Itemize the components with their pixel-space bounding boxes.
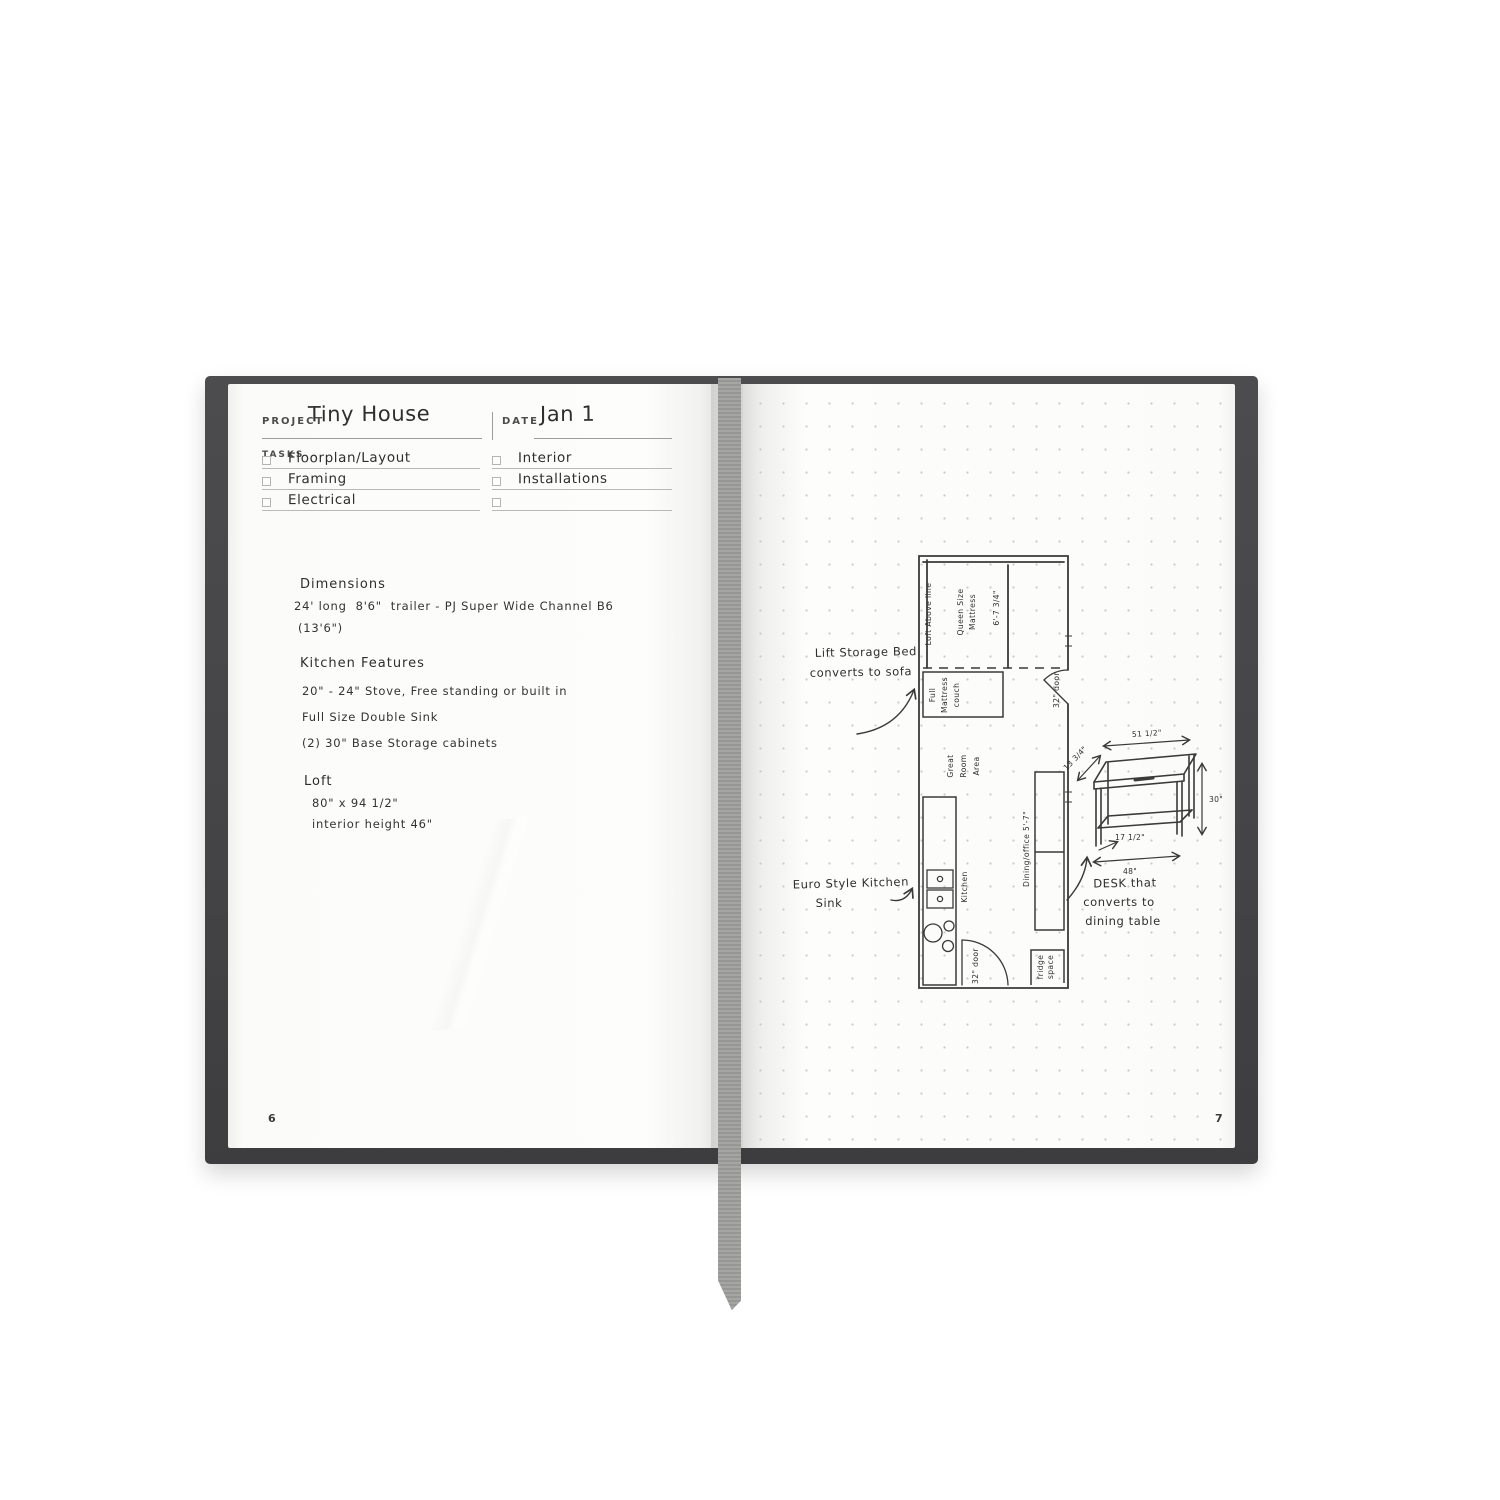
header-divider xyxy=(492,412,493,440)
loft-line1: 80" x 94 1/2" xyxy=(312,796,399,810)
plan-label-mattress2: Mattress xyxy=(940,677,949,713)
project-underline xyxy=(262,414,482,439)
kitchen-line2: Full Size Double Sink xyxy=(302,710,438,724)
task-row: Electrical xyxy=(262,484,480,511)
left-page: PROJECT Tiny House DATE Jan 1 TASKS Floo… xyxy=(228,384,726,1148)
desk-dim-height: 30" xyxy=(1209,795,1223,804)
desk-note-arrow xyxy=(1067,858,1087,900)
plan-label-loft: Loft Above line xyxy=(924,583,933,646)
desk-dimension-labels: 51 1/2" 13 3/4" 30" 17 1/2" 48" xyxy=(1062,728,1223,876)
plan-kitchen-counter xyxy=(923,797,956,985)
desk-note-line3: dining table xyxy=(1085,914,1161,928)
plan-bottom-door xyxy=(962,940,1008,985)
right-page-number: 7 xyxy=(1215,1112,1223,1125)
dimensions-line1: 24' long 8'6" trailer - PJ Super Wide Ch… xyxy=(294,599,614,613)
plan-label-great: Great xyxy=(946,754,955,777)
kitchen-line3: (2) 30" Base Storage cabinets xyxy=(302,736,498,750)
task-checkbox xyxy=(262,498,271,507)
date-underline xyxy=(534,414,672,439)
desk-dim-depth: 13 3/4" xyxy=(1062,744,1089,772)
right-page: Loft Above line Queen Size Mattress 6'-7… xyxy=(737,384,1235,1148)
dimensions-line2: (13'6") xyxy=(298,621,343,635)
plan-label-fridge: fridge xyxy=(1036,955,1045,980)
annotation-lift-bed: Lift Storage Bed converts to sofa xyxy=(810,644,917,734)
lift-bed-line2: converts to sofa xyxy=(810,664,913,680)
plan-label-mattress: Mattress xyxy=(968,594,977,630)
plan-label-kitchen: Kitchen xyxy=(960,871,969,902)
plan-label-full: Full xyxy=(928,688,937,703)
plan-dim-bed: 6'-7 3/4" xyxy=(992,590,1001,625)
loft-title: Loft xyxy=(304,774,332,789)
plan-label-door-bottom: 32" door xyxy=(971,948,980,984)
desk-dim-leg: 17 1/2" xyxy=(1115,833,1145,842)
page-crease xyxy=(286,800,670,1048)
dimensions-title: Dimensions xyxy=(300,577,386,592)
floorplan-sketch: Loft Above line Queen Size Mattress 6'-7… xyxy=(737,384,1235,1148)
kitchen-line1: 20" - 24" Stove, Free standing or built … xyxy=(302,684,567,698)
plan-label-queen: Queen Size xyxy=(956,589,965,636)
kitchen-title: Kitchen Features xyxy=(300,656,425,671)
euro-sink-line1: Euro Style Kitchen xyxy=(793,874,910,891)
plan-label-couch: couch xyxy=(952,683,961,708)
desk-note-line2: converts to xyxy=(1083,895,1155,909)
euro-sink-line2: Sink xyxy=(816,896,843,910)
task-label: Electrical xyxy=(288,492,356,508)
plan-label-room: Room xyxy=(959,754,968,777)
loft-line2: interior height 46" xyxy=(312,817,433,831)
lift-bed-line1: Lift Storage Bed xyxy=(815,644,917,660)
plan-sink xyxy=(927,870,953,908)
desk-dim-bottom: 48" xyxy=(1123,867,1137,876)
plan-label-space: space xyxy=(1046,955,1055,979)
euro-sink-arrow xyxy=(891,889,912,901)
plan-label-area: Area xyxy=(972,756,981,775)
desk-dim-top: 51 1/2" xyxy=(1132,728,1162,739)
ribbon-bookmark xyxy=(718,378,741,1310)
plan-stove-burners xyxy=(924,921,954,952)
desk-note-line1: DESK that xyxy=(1093,875,1157,890)
left-page-number: 6 xyxy=(268,1112,276,1125)
product-photo-canvas: PROJECT Tiny House DATE Jan 1 TASKS Floo… xyxy=(0,0,1500,1500)
annotation-desk-note: DESK that converts to dining table xyxy=(1067,858,1161,928)
desk-sketch xyxy=(1094,754,1196,846)
task-checkbox xyxy=(492,498,501,507)
notebook: PROJECT Tiny House DATE Jan 1 TASKS Floo… xyxy=(205,376,1258,1164)
plan-label-dining: Dining/office 5'-7" xyxy=(1022,811,1031,887)
lift-bed-arrow xyxy=(857,690,914,734)
annotation-euro-sink: Euro Style Kitchen Sink xyxy=(793,874,912,910)
plan-dining-counter xyxy=(1035,772,1064,930)
plan-label-door-top: 32" door xyxy=(1052,672,1061,708)
task-row xyxy=(492,484,672,511)
